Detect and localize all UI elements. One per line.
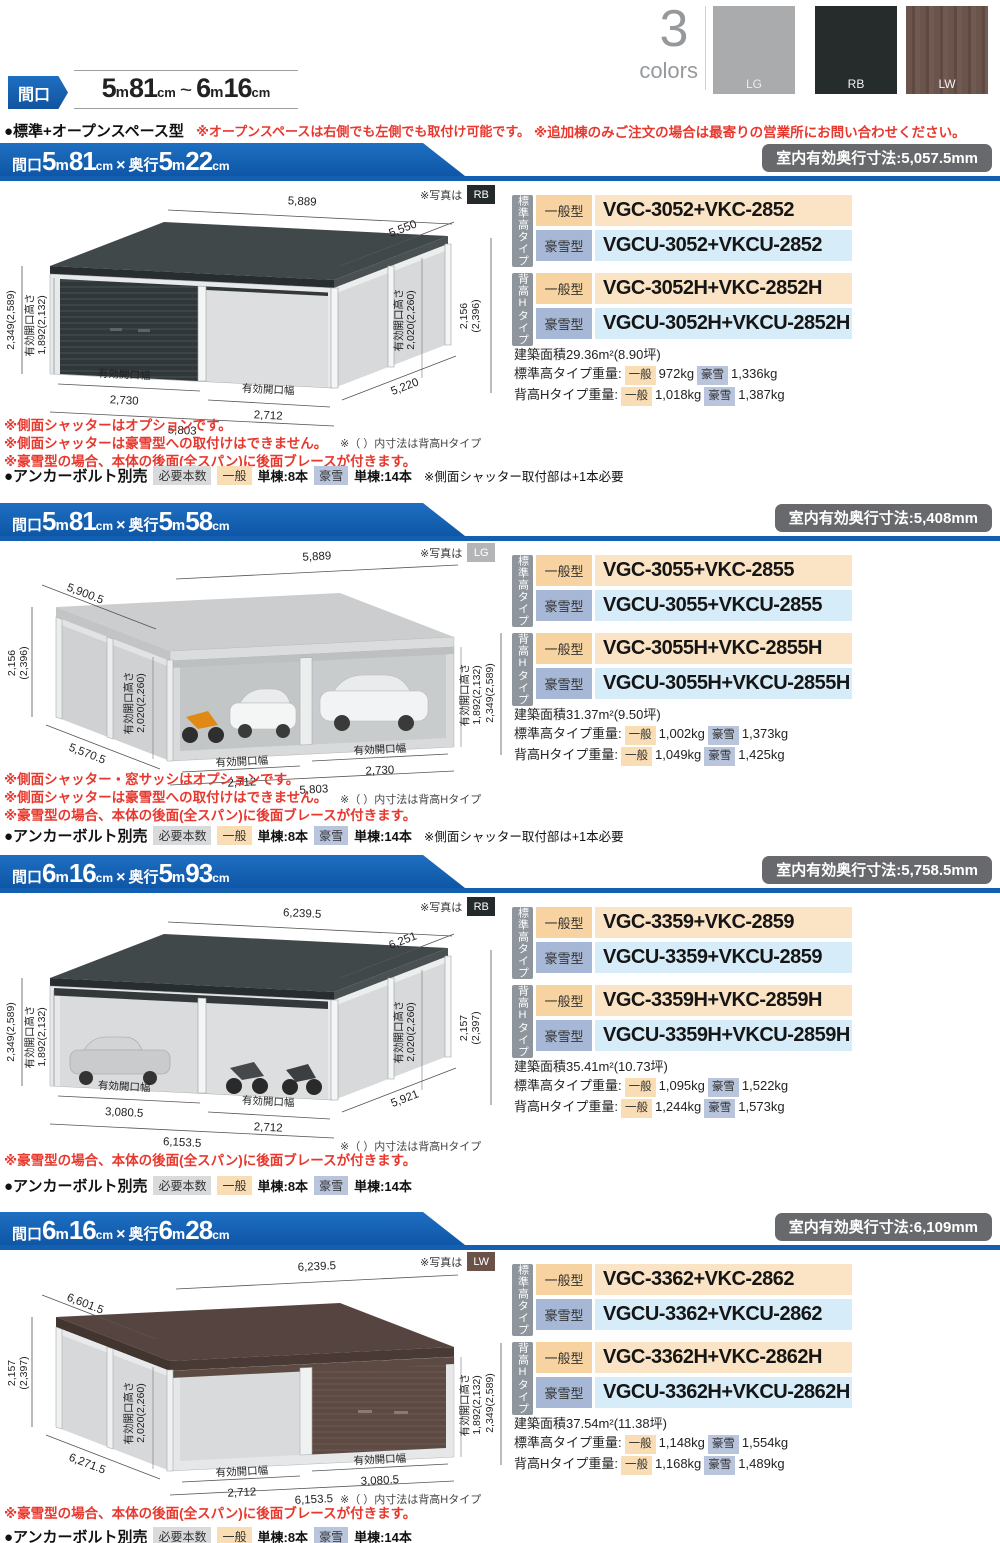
table-row: 一般型VGC-3359+VKC-2859 — [536, 907, 852, 938]
anchor-extra-note: ※側面シャッター取付部は+1本必要 — [424, 826, 624, 845]
note-line: ※豪雪型の場合、本体の後面(全スパン)に後面ブレースが付きます。 — [4, 1152, 416, 1170]
dim-right-outer-height: 2,349(2,589) — [484, 1373, 496, 1433]
banner-underline — [0, 888, 1000, 893]
banner-underline — [0, 1245, 1000, 1250]
dim-right-open-height: 1,892(2,132) — [471, 665, 483, 725]
table-row: 豪雪型VGCU-3359H+VKCU-2859H — [536, 1020, 852, 1051]
floor-area: 建築面積31.37m²(9.50坪) — [514, 705, 788, 724]
weight-high: 背高Hタイプ重量:一般1,049kg豪雪1,425kg — [514, 745, 788, 766]
dim-total-width: 6,153.5 — [163, 1136, 202, 1150]
model-code: VGC-3052+VKC-2852 — [595, 195, 852, 226]
spec-info: 建築面積29.36m²(8.90坪) 標準高タイプ重量:一般972kg豪雪1,3… — [514, 345, 785, 406]
note-line: ※豪雪型の場合、本体の後面(全スパン)に後面ブレースが付きます。 — [4, 807, 416, 825]
open-height-label: 有効開口高さ — [392, 289, 405, 352]
garage-isometric-diagram: 6,601.5 6,239.5 2,157 (2,397) 有効開口高さ 2,0… — [2, 1255, 507, 1505]
dim-top-depth: 5,900.5 — [65, 582, 105, 607]
anchor-bolt-row: ●アンカーボルト別売 必要本数 一般 単棟:8本 豪雪 単棟:14本 ※側面シャ… — [4, 465, 624, 486]
model-type: 豪雪型 — [536, 230, 592, 261]
weight-high: 背高Hタイプ重量:一般1,168kg豪雪1,489kg — [514, 1454, 788, 1475]
garage-isometric-diagram: 5,889 5,550 2,349(2,589) 有効開口高さ 1,892(2,… — [2, 188, 507, 438]
dim-bay2-width: 3,080.5 — [360, 1474, 399, 1488]
table-row: 一般型VGC-3055H+VKC-2855H — [536, 633, 852, 664]
model-type: 豪雪型 — [536, 308, 592, 339]
section-6m16x6m28: 間口6m16cm×奥行6m28cm 室内有効奥行寸法:6,109mm ※写真は … — [0, 1212, 1000, 1543]
table-row: 豪雪型VGCU-3055+VKCU-2855 — [536, 590, 852, 621]
model-table: 標準高タイプ 一般型VGC-3052+VKC-2852 豪雪型VGCU-3052… — [512, 195, 852, 346]
open-height-label: 有効開口高さ — [23, 294, 36, 357]
color-swatch-rb: RB — [815, 6, 897, 94]
interior-depth-badge: 室内有効奥行寸法:5,758.5mm — [762, 856, 992, 884]
open-width-label: 有効開口幅 — [242, 1094, 295, 1110]
group-high-type: 背高Hタイプ 一般型VGC-3052H+VKC-2852H 豪雪型VGCU-30… — [512, 273, 852, 346]
building-shapes — [56, 593, 454, 761]
table-row: 一般型VGC-3362H+VKC-2862H — [536, 1342, 852, 1373]
dim-right-outer-2: (2,397) — [470, 1011, 482, 1044]
note-line: ※豪雪型の場合、本体の後面(全スパン)に後面ブレースが付きます。 — [4, 1505, 416, 1523]
open-height-label: 有効開口高さ — [23, 1006, 36, 1069]
dim-left-outer-2: (2,396) — [18, 646, 30, 679]
garage-isometric-diagram: 6,239.5 6,251 2,349(2,589) 有効開口高さ 1,892(… — [2, 900, 507, 1150]
open-height-label: 有効開口高さ — [122, 672, 135, 735]
anchor-extra-note: ※側面シャッター取付部は+1本必要 — [424, 466, 624, 485]
dim-right-open-height: 1,892(2,132) — [471, 1375, 483, 1435]
section-title-banner: 間口6m16cm×奥行5m93cm — [0, 855, 465, 888]
dim-bay1-width: 2,712 — [227, 1486, 256, 1499]
table-row: 一般型VGC-3362+VKC-2862 — [536, 1264, 852, 1295]
model-code: VGC-3052H+VKC-2852H — [595, 273, 852, 304]
group-label: 背高Hタイプ — [512, 273, 533, 346]
dim-left-outer-2: (2,397) — [18, 1356, 30, 1389]
table-row: 一般型VGC-3055+VKC-2855 — [536, 555, 852, 586]
dim-inner-open-height: 2,020(2,260) — [135, 1383, 147, 1443]
group-high-type: 背高Hタイプ 一般型VGC-3359H+VKC-2859H 豪雪型VGCU-33… — [512, 985, 852, 1058]
type-note: ※オープンスペースは右側でも左側でも取付け可能です。 — [196, 124, 530, 139]
section-5m81x5m22: 間口5m81cm×奥行5m22cm 室内有効奥行寸法:5,057.5mm ※写真… — [0, 143, 1000, 503]
floor-area: 建築面積37.54m²(11.38坪) — [514, 1414, 788, 1433]
model-type: 一般型 — [536, 195, 592, 226]
garage-isometric-diagram: 5,900.5 5,889 2,156 (2,396) 有効開口高さ 2,020… — [2, 545, 507, 795]
table-row: 豪雪型VGCU-3052+VKCU-2852 — [536, 230, 852, 261]
type-label: ●標準+オープンスペース型 — [4, 123, 184, 140]
dim-top-width: 5,889 — [302, 550, 331, 563]
open-width-label: 有効開口幅 — [353, 1452, 406, 1468]
banner-underline — [0, 536, 1000, 541]
building-shapes — [56, 1303, 454, 1471]
open-width-label: 有効開口幅 — [215, 1464, 268, 1480]
model-table: 標準高タイプ 一般型VGC-3055+VKC-2855 豪雪型VGCU-3055… — [512, 555, 852, 706]
page-header: 間口 5m81cm~6m16cm ●標準+オープンスペース型 ※オープンスペース… — [0, 0, 1000, 143]
dim-total-width: 6,153.5 — [294, 1493, 333, 1505]
dim-bottom-depth: 5,570.5 — [67, 742, 107, 767]
open-width-label: 有効開口幅 — [242, 382, 295, 398]
dim-left-open-height: 1,892(2,132) — [36, 1007, 48, 1067]
interior-depth-badge: 室内有効奥行寸法:6,109mm — [775, 1213, 992, 1241]
section-title-banner: 間口5m81cm×奥行5m58cm — [0, 503, 465, 536]
swatch-label: LG — [746, 77, 762, 91]
dim-top-depth: 6,601.5 — [65, 1292, 105, 1317]
banner-underline — [0, 176, 1000, 181]
table-row: 豪雪型VGCU-3359+VKCU-2859 — [536, 942, 852, 973]
colors-count: 3 — [650, 0, 698, 58]
color-swatch-lg: LG — [713, 6, 795, 94]
dim-bay1-width: 2,730 — [109, 394, 138, 407]
open-width-label: 有効開口幅 — [98, 1079, 151, 1095]
dim-left-outer-height: 2,349(2,589) — [5, 1002, 17, 1062]
table-row: 豪雪型VGCU-3362H+VKCU-2862H — [536, 1377, 852, 1408]
table-row: 豪雪型VGCU-3052H+VKCU-2852H — [536, 308, 852, 339]
section-5m81x5m58: 間口5m81cm×奥行5m58cm 室内有効奥行寸法:5,408mm ※写真は … — [0, 503, 1000, 855]
weight-high: 背高Hタイプ重量:一般1,018kg豪雪1,387kg — [514, 385, 785, 406]
dim-top-width: 6,239.5 — [283, 907, 322, 921]
dim-bay2-width: 2,712 — [253, 1121, 282, 1134]
open-width-label: 有効開口幅 — [353, 742, 406, 758]
weight-standard: 標準高タイプ重量:一般1,148kg豪雪1,554kg — [514, 1433, 788, 1454]
range-value: 5 — [102, 73, 116, 103]
dim-left-outer-1: 2,156 — [6, 650, 18, 676]
open-width-label: 有効開口幅 — [215, 754, 268, 770]
dim-inner-open-height: 2,020(2,260) — [135, 673, 147, 733]
colors-word: colors — [598, 58, 698, 84]
group-standard-height: 標準高タイプ 一般型VGC-3359+VKC-2859 豪雪型VGCU-3359… — [512, 907, 852, 979]
section-6m16x5m93: 間口6m16cm×奥行5m93cm 室内有効奥行寸法:5,758.5mm ※写真… — [0, 855, 1000, 1212]
table-row: 一般型VGC-3359H+VKC-2859H — [536, 985, 852, 1016]
order-note: ※追加棟のみご注文の場合は最寄りの営業所にお問い合わせください。 — [534, 121, 966, 141]
dim-right-outer-2: (2,396) — [470, 299, 482, 332]
floor-area: 建築面積29.36m²(8.90坪) — [514, 345, 785, 364]
dim-right-outer-1: 2,156 — [458, 303, 470, 329]
catalog-page: 間口 5m81cm~6m16cm ●標準+オープンスペース型 ※オープンスペース… — [0, 0, 1000, 1543]
dim-bay1-width: 3,080.5 — [105, 1106, 144, 1120]
maguchi-range: 5m81cm~6m16cm — [74, 70, 298, 109]
dim-left-open-height: 1,892(2,132) — [36, 295, 48, 355]
red-notes: ※豪雪型の場合、本体の後面(全スパン)に後面ブレースが付きます。 — [4, 1505, 416, 1523]
dim-left-outer-1: 2,157 — [6, 1360, 18, 1386]
dim-right-outer-1: 2,157 — [458, 1015, 470, 1041]
interior-depth-badge: 室内有効奥行寸法:5,408mm — [775, 504, 992, 532]
model-code: VGCU-3052H+VKCU-2852H — [595, 308, 852, 339]
open-width-label: 有効開口幅 — [98, 367, 151, 383]
building-shapes — [50, 222, 451, 388]
group-standard-height: 標準高タイプ 一般型VGC-3055+VKC-2855 豪雪型VGCU-3055… — [512, 555, 852, 627]
group-standard-height: 標準高タイプ 一般型VGC-3362+VKC-2862 豪雪型VGCU-3362… — [512, 1264, 852, 1336]
group-high-type: 背高Hタイプ 一般型VGC-3362H+VKC-2862H 豪雪型VGCU-33… — [512, 1342, 852, 1415]
note-line: ※側面シャッター・窓サッシはオプションです。 — [4, 771, 416, 789]
model-code: VGCU-3052+VKCU-2852 — [595, 230, 852, 261]
open-height-label: 有効開口高さ — [458, 1374, 471, 1437]
floor-area: 建築面積35.41m²(10.73坪) — [514, 1057, 788, 1076]
colors-divider — [705, 6, 706, 90]
section-title-banner: 間口6m16cm×奥行6m28cm — [0, 1212, 465, 1245]
model-type: 一般型 — [536, 273, 592, 304]
open-height-label: 有効開口高さ — [122, 1382, 135, 1445]
interior-depth-badge: 室内有効奥行寸法:5,057.5mm — [762, 144, 992, 172]
anchor-bolt-row: ●アンカーボルト別売 必要本数 一般 単棟:8本 豪雪 単棟:14本 ※側面シャ… — [4, 825, 624, 846]
table-row: 豪雪型VGCU-3055H+VKCU-2855H — [536, 668, 852, 699]
anchor-bolt-row: ●アンカーボルト別売 必要本数 一般 単棟:8本 豪雪 単棟:14本 — [4, 1526, 412, 1543]
paren-note: ※（ ）内寸法は背高Hタイプ — [340, 435, 481, 451]
weight-standard: 標準高タイプ重量:一般972kg豪雪1,336kg — [514, 364, 785, 385]
type-row: ●標準+オープンスペース型 ※オープンスペースは右側でも左側でも取付け可能です。 — [4, 120, 530, 141]
swatch-label: LW — [938, 77, 955, 91]
building-shapes — [50, 934, 451, 1100]
dim-inner-open-height: 2,020(2,260) — [405, 290, 417, 350]
spec-info: 建築面積37.54m²(11.38坪) 標準高タイプ重量:一般1,148kg豪雪… — [514, 1414, 788, 1475]
note-line: ※側面シャッターはオプションです。 — [4, 417, 416, 435]
table-row: 豪雪型VGCU-3362+VKCU-2862 — [536, 1299, 852, 1330]
table-row: 一般型VGC-3052H+VKC-2852H — [536, 273, 852, 304]
dim-bottom-depth: 6,271.5 — [67, 1452, 107, 1477]
spec-info: 建築面積35.41m²(10.73坪) 標準高タイプ重量:一般1,095kg豪雪… — [514, 1057, 788, 1118]
dim-top-width: 5,889 — [287, 195, 316, 208]
group-label: 標準高タイプ — [512, 195, 533, 267]
dim-inner-open-height: 2,020(2,260) — [405, 1002, 417, 1062]
color-swatch-lw: LW — [906, 6, 988, 94]
model-table: 標準高タイプ 一般型VGC-3362+VKC-2862 豪雪型VGCU-3362… — [512, 1264, 852, 1415]
section-title-banner: 間口5m81cm×奥行5m22cm — [0, 143, 465, 176]
weight-standard: 標準高タイプ重量:一般1,095kg豪雪1,522kg — [514, 1076, 788, 1097]
dim-top-width: 6,239.5 — [297, 1260, 336, 1274]
spec-info: 建築面積31.37m²(9.50坪) 標準高タイプ重量:一般1,002kg豪雪1… — [514, 705, 788, 766]
maguchi-chip-label: 間口 — [18, 81, 50, 105]
banner-label: 間口 — [12, 154, 42, 175]
dim-left-outer-height: 2,349(2,589) — [5, 290, 17, 350]
open-height-label: 有効開口高さ — [458, 664, 471, 727]
swatch-label: RB — [848, 77, 865, 91]
model-table: 標準高タイプ 一般型VGC-3359+VKC-2859 豪雪型VGCU-3359… — [512, 907, 852, 1058]
paren-note: ※（ ）内寸法は背高Hタイプ — [340, 791, 481, 807]
group-standard-height: 標準高タイプ 一般型VGC-3052+VKC-2852 豪雪型VGCU-3052… — [512, 195, 852, 267]
table-row: 一般型VGC-3052+VKC-2852 — [536, 195, 852, 226]
weight-high: 背高Hタイプ重量:一般1,244kg豪雪1,573kg — [514, 1097, 788, 1118]
weight-standard: 標準高タイプ重量:一般1,002kg豪雪1,373kg — [514, 724, 788, 745]
maguchi-chip: 間口 — [8, 76, 68, 109]
anchor-bolt-row: ●アンカーボルト別売 必要本数 一般 単棟:8本 豪雪 単棟:14本 — [4, 1175, 412, 1196]
dim-right-outer-height: 2,349(2,589) — [484, 663, 496, 723]
open-height-label: 有効開口高さ — [392, 1001, 405, 1064]
group-high-type: 背高Hタイプ 一般型VGC-3055H+VKC-2855H 豪雪型VGCU-30… — [512, 633, 852, 706]
red-notes: ※豪雪型の場合、本体の後面(全スパン)に後面ブレースが付きます。 — [4, 1152, 416, 1170]
